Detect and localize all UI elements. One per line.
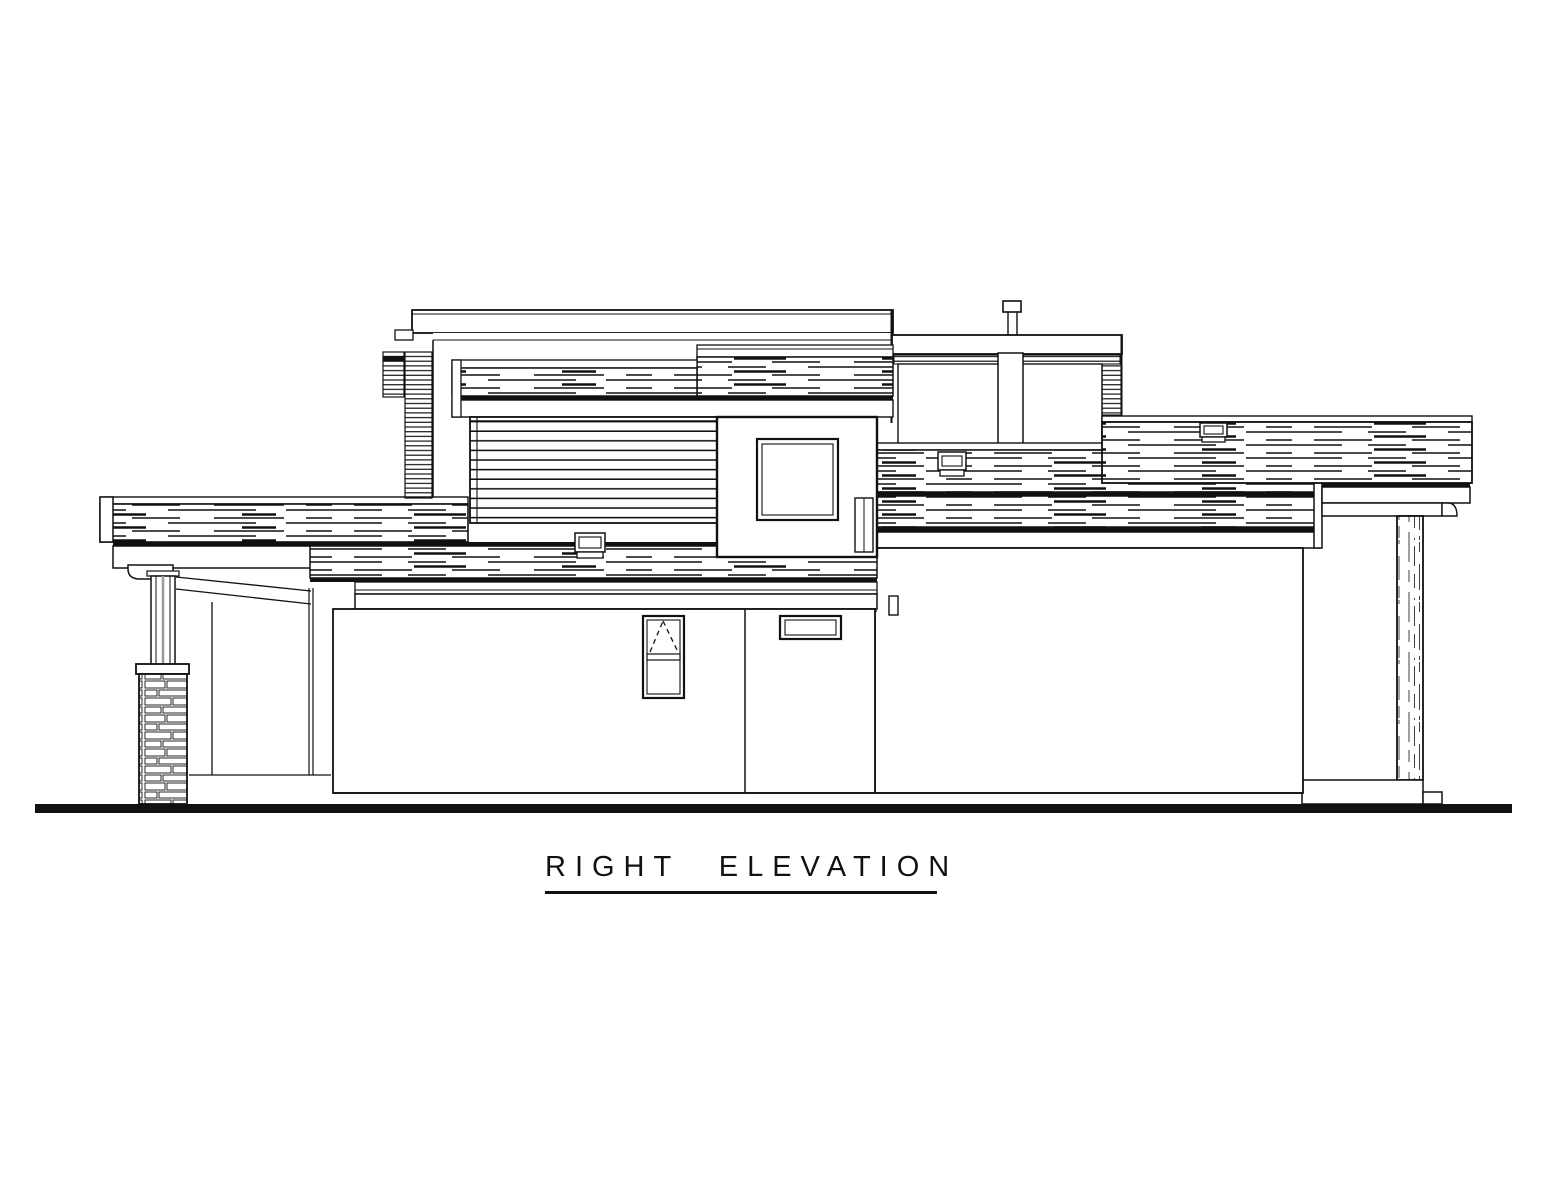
clerestory-post [998, 353, 1023, 452]
roof-vent-middle [938, 452, 966, 476]
tall-awning-window [643, 616, 684, 698]
patio-base [1302, 780, 1442, 804]
stone-pier [136, 664, 189, 804]
elevation-drawing [0, 0, 1553, 1200]
roof-vent-pipe [1003, 301, 1021, 336]
horizontal-siding-panel [470, 417, 718, 523]
elevation-sheet: RIGHT ELEVATION [0, 0, 1553, 1200]
porch-post [147, 571, 179, 665]
roof-vent-left [575, 533, 605, 558]
siding-strip-left2 [405, 352, 432, 498]
clerestory [892, 335, 1122, 452]
cornice-molding [1442, 503, 1457, 516]
ground-line [35, 804, 1512, 813]
window-bay [717, 417, 877, 557]
roof-vent-right [1200, 423, 1227, 442]
entry-porch [176, 577, 331, 775]
garage-wall [875, 548, 1303, 793]
transom-window [780, 616, 841, 639]
drawing-title: RIGHT ELEVATION [545, 851, 937, 894]
patio-column [1397, 516, 1423, 780]
